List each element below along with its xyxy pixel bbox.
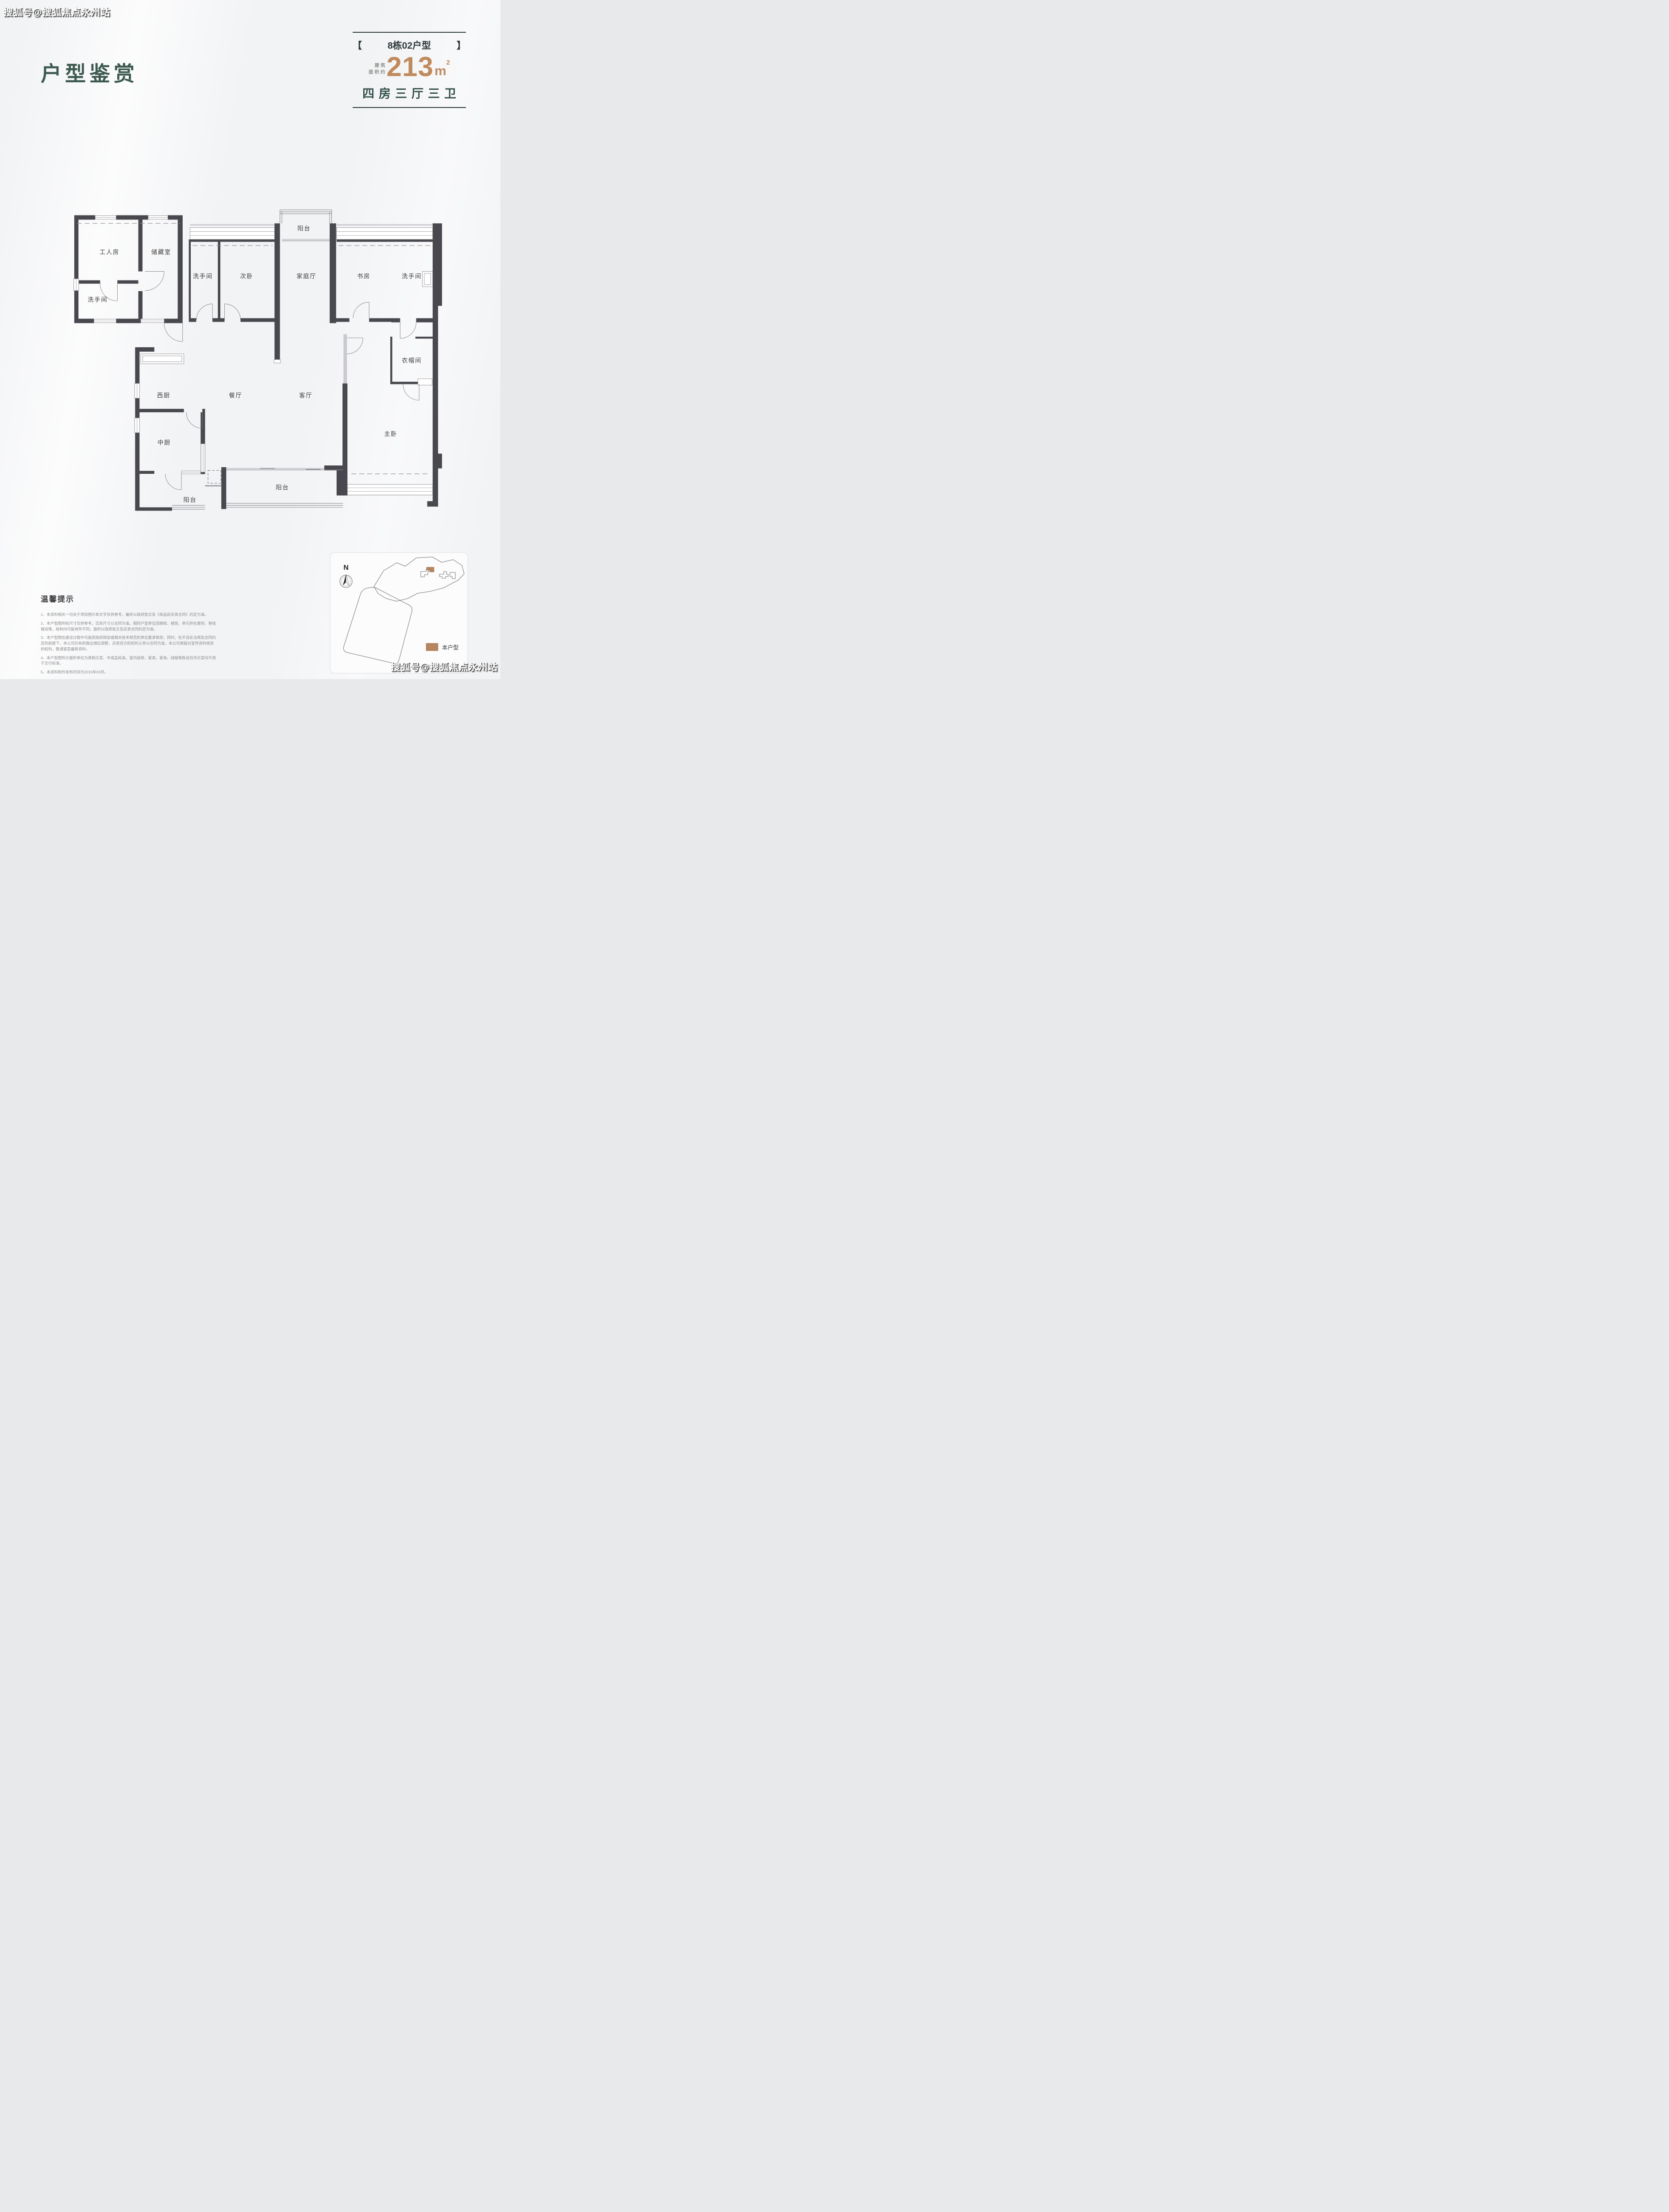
watermark-top-left: 搜狐号@搜狐焦点永州站: [4, 5, 110, 19]
room-label-bath2: 洗手间: [193, 273, 213, 280]
legend-swatch: [426, 643, 438, 651]
divider-line: [353, 32, 466, 33]
room-label-worker: 工人房: [100, 249, 119, 255]
windows: [74, 216, 433, 495]
legend-label: 本户型: [442, 644, 459, 651]
room-label-bath3: 洗手间: [402, 273, 422, 280]
page-title: 户型鉴赏: [41, 57, 138, 87]
watermark-bottom-right: 搜狐号@搜狐焦点永州站: [391, 660, 498, 673]
divider-line: [353, 107, 466, 108]
glass-partition: [343, 334, 347, 383]
unit-name: 8栋02户型: [388, 38, 431, 52]
north-label: N: [343, 564, 349, 572]
appliance-dashed-box: [208, 470, 221, 483]
floorplan-poster: 搜狐号@搜狐焦点永州站 户型鉴赏 【 8栋02户型 】 建筑 面积约 213 m…: [0, 0, 500, 679]
room-label-balcony-top: 阳台: [297, 225, 311, 232]
room-label-chinesekitchen: 中厨: [158, 439, 171, 446]
room-label-storage: 储藏室: [151, 248, 171, 255]
threshold: [205, 485, 221, 487]
bracket-right: 】: [457, 38, 466, 52]
room-label-dining: 餐厅: [229, 392, 242, 399]
room-label-living: 客厅: [299, 392, 312, 399]
site-map-card: [330, 553, 468, 673]
tip-item: 3、本户型图在建设过程中可能因政府规划或相关技术规范的单位要求修改，同时，在不违…: [41, 635, 217, 652]
room-label-balcony-small: 阳台: [183, 497, 196, 503]
room-label-cloakroom: 衣帽间: [402, 357, 422, 364]
room-label-master: 主卧: [384, 430, 397, 437]
balcony-railings: [172, 210, 433, 509]
room-label-familyhall: 家庭厅: [296, 273, 316, 280]
tip-item: 4、本户型图所示面积单位为英制示意、半成品标准，室内装修、家具、家电、绿植等陈设…: [41, 655, 217, 667]
bracket-left: 【: [353, 38, 362, 52]
room-label-bath1: 洗手间: [88, 296, 108, 303]
room-label-westkitchen: 西厨: [157, 392, 170, 399]
room-label-balcony-bottom: 阳台: [276, 484, 289, 491]
tips-title: 温馨提示: [41, 593, 217, 604]
area-value: 213: [387, 55, 434, 80]
window-mullions: [76, 218, 433, 492]
tip-item: 5、本资料制作发布时间为2015年03月。: [41, 669, 217, 675]
site-map: N 本户型: [330, 552, 468, 674]
door-swings: [100, 271, 419, 490]
tip-item: 2、本户型图所标尺寸仅供参考，实际尺寸以合同为准。相同户型单位因楼栋、楼层、单元…: [41, 621, 217, 632]
unit-info-card: 【 8栋02户型 】 建筑 面积约 213 m 2 四房三厅三卫: [353, 32, 466, 108]
room-label-study: 书房: [357, 273, 370, 280]
unit-layout: 四房三厅三卫: [353, 84, 466, 101]
floor-plan: 工人房 储藏室 洗手间 洗手间 次卧 阳台 家庭厅 书房 洗手间 衣帽间 西厨 …: [65, 200, 445, 513]
area-prefix: 建筑 面积约: [369, 62, 387, 75]
tip-item: 1、本资料相关一切关于项目图片和文字仅供参考，最终以政府批文及《商品房买卖合同》…: [41, 612, 217, 618]
exterior-overhang-lines: [190, 224, 435, 469]
room-label-bedroom2: 次卧: [240, 273, 253, 280]
unit-area: 建筑 面积约 213 m 2: [353, 55, 466, 80]
area-unit: m: [435, 64, 446, 79]
dashed-lines: [77, 223, 431, 474]
walls: [74, 215, 442, 511]
area-superscript: 2: [446, 59, 450, 66]
unit-name-row: 【 8栋02户型 】: [353, 38, 466, 52]
tips-section: 温馨提示 1、本资料相关一切关于项目图片和文字仅供参考，最终以政府批文及《商品房…: [41, 593, 217, 678]
